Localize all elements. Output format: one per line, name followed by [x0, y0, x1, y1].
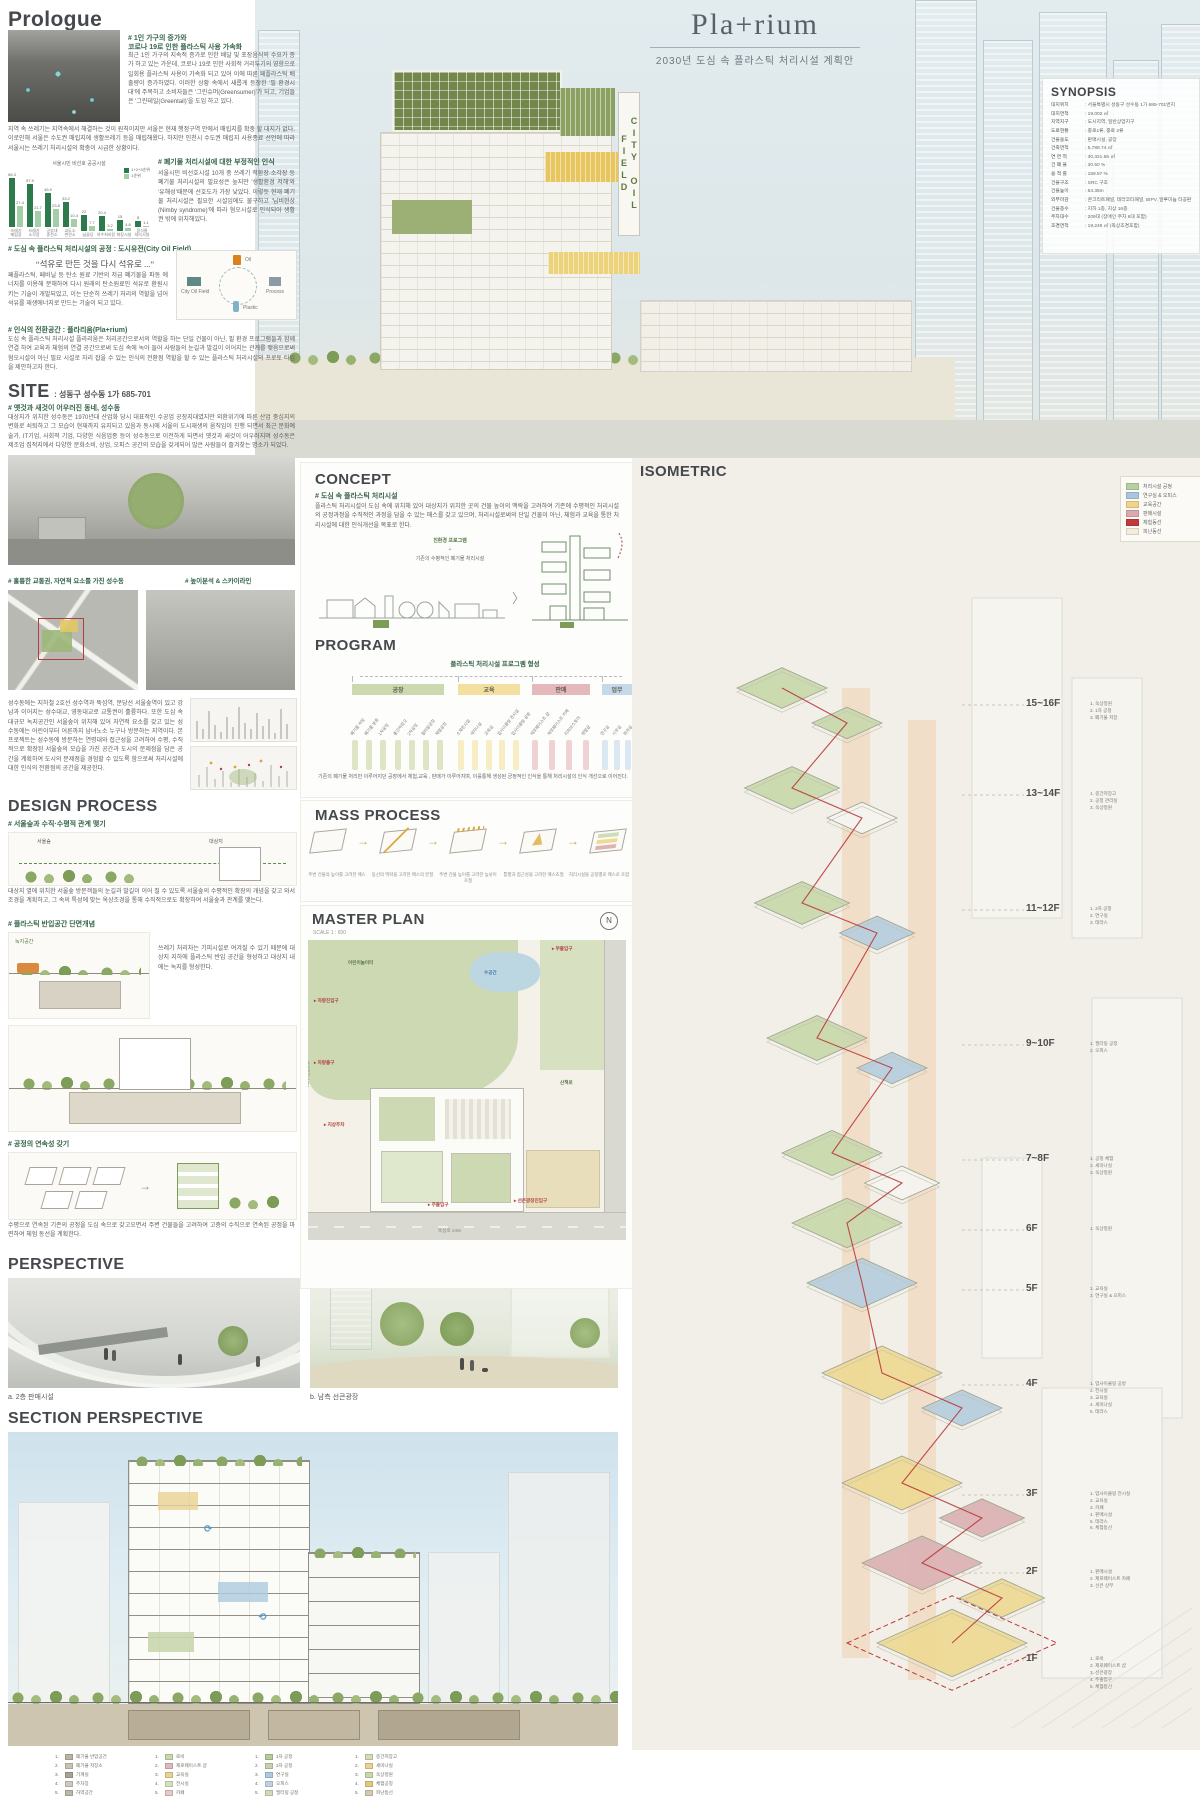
bar-wrap: 66.3 [9, 172, 16, 227]
synopsis-key: 건물높이 [1051, 188, 1085, 197]
chart-bar-group: 227.7납골당 [80, 209, 96, 238]
section-legend-row: 5.피난동선 [355, 1788, 397, 1797]
chart-title: 서울시민 비선호 공공시설 [8, 160, 150, 167]
mass-step-5 [589, 828, 627, 853]
program-item: 제로웨이스트 카페 [549, 700, 557, 770]
mass-step-1 [309, 828, 347, 853]
legend-label: 폐기물 반입공간 [76, 1754, 107, 1760]
bar-value: 23.8 [52, 203, 60, 208]
synopsis-row: 건물높이: 64.35m [1051, 188, 1191, 197]
hero-band: Pla+rium 2030년 도심 속 플라스틱 처리시설 계획안 CITY O… [255, 0, 1200, 458]
design-process-heading: DESIGN PROCESS [8, 798, 158, 816]
program-item-bar [499, 740, 505, 770]
sketch-basement [69, 1092, 241, 1124]
synopsis-row: 도로현황: 중로1류, 중로 2류 [1051, 128, 1191, 137]
section-legend-group: 1.로비2.제로웨이스트 샵3.교육실4.전시실5.카페 [155, 1752, 207, 1797]
design-s1-diagram: 서울숲 대상지 [8, 832, 297, 886]
bar-pair: 227.7 [81, 209, 96, 231]
legend-label: 처리시설 공정 [1143, 483, 1172, 490]
program-item-bar [472, 740, 478, 770]
chart-bar [53, 209, 59, 227]
chart-bar [89, 226, 95, 232]
mass-step-caption: 처리시설을 공정별로 매스로 조합 [568, 872, 630, 883]
legend-chip [165, 1790, 173, 1796]
section-bg-building [18, 1502, 110, 1704]
section-legend-row: 5.하역공간 [55, 1788, 107, 1797]
section-legend-row: 3.기계실 [55, 1770, 107, 1779]
section-legend-row: 1.중간저장고 [355, 1752, 397, 1761]
site-s1-heading: # 옛것과 새것이 어우러진 동네, 성수동 [8, 404, 295, 413]
program-item-bar [380, 740, 386, 770]
legend-label: 중간저장고 [376, 1754, 397, 1760]
legend-index: 5. [355, 1790, 362, 1795]
program-heading: PROGRAM [315, 638, 396, 655]
tree-drop [532, 676, 533, 682]
legend-chip [65, 1790, 73, 1796]
tree-drop [352, 676, 353, 682]
legend-label: 폐기물 저장소 [76, 1763, 103, 1769]
masterplan-label: ▸ 지상주차 [324, 1122, 345, 1128]
synopsis-row: 주차대수: 209대 (장애인 주차 6대 포함) [1051, 214, 1191, 223]
section-legend-row: 2.세미나실 [355, 1761, 397, 1770]
bar-value: 15 [118, 214, 122, 219]
floor-notes: 1. 공정 체험 2. 세미나실 3. 옥상정원 [1090, 1156, 1198, 1177]
bar-wrap: 27.4 [17, 200, 24, 226]
section-legend-row: 1.1차 공정 [255, 1752, 298, 1761]
legend-index: 4. [355, 1781, 362, 1786]
person [104, 1348, 108, 1360]
synopsis-key: 지역지구 [1051, 119, 1085, 128]
legend-label: 교육공간 [1143, 501, 1161, 508]
arrow-icon: → [427, 834, 439, 848]
park-tree [570, 1318, 600, 1348]
roof-garden [132, 1448, 302, 1466]
park-tree [380, 1302, 424, 1346]
synopsis-row: 용 적 률: 159.57 % [1051, 171, 1191, 180]
collage-ground [8, 539, 295, 565]
program-item-bar [409, 740, 415, 770]
bar-value: 4.8 [125, 222, 131, 227]
synopsis-row: 조경면적: 19,249 ㎡ (옥상조경포함) [1051, 223, 1191, 232]
legend-swatch [124, 168, 129, 173]
legend-chip [65, 1772, 73, 1778]
section-legend-row: 1.폐기물 반입공간 [55, 1752, 107, 1761]
legend-chip [365, 1754, 373, 1760]
legend-chip [65, 1781, 73, 1787]
section-legend-row: 3.교육실 [155, 1770, 207, 1779]
program-item: 체험공정 [437, 700, 445, 770]
legend-chip [365, 1772, 373, 1778]
legend-chip [265, 1763, 273, 1769]
truck-icon [17, 963, 39, 973]
bar-value: 1.1 [143, 220, 149, 225]
masterplan-label: ▸ 선큰광장진입구 [514, 1198, 547, 1204]
bar-value: 8 [137, 215, 139, 220]
program-item-bar [486, 740, 492, 770]
legend-index: 3. [355, 1772, 362, 1777]
legend-chip [1126, 501, 1139, 508]
person [460, 1358, 464, 1370]
bar-wrap: 33.2 [63, 196, 70, 227]
masterplan-labels: ▸ 차량진입구▸ 차량출구▸ 지상주차▸ 주출입구▸ 부출입구▸ 선큰광장진입구… [308, 940, 626, 1240]
prologue-s1-wide: 지역 속 쓰레기는 지역속에서 해결하는 것이 원칙이지만 서울은 현재 행정구… [8, 126, 295, 154]
isometric-drawing [632, 458, 1200, 1750]
mass-step-caption: 주변 건물의 높이를 고려한 매스 [306, 872, 368, 883]
program-item: 중간저장고 [395, 700, 403, 770]
floor-notes: 1. 중간저장고 2. 공정 관리실 3. 옥상정원 [1090, 791, 1198, 812]
synopsis-key: 건물용도 [1051, 137, 1085, 146]
program-item-bar [458, 740, 464, 770]
legend-label: 기계실 [76, 1772, 89, 1778]
legend-label: 오피스 [276, 1781, 289, 1787]
section-ground-line [8, 1702, 618, 1703]
chart-bar-group: 20.43.2하수처리장 [98, 210, 114, 238]
program-item: 제로웨이스트 샵 [532, 700, 540, 770]
concept-diagram-top-label: 친환경 프로그램 [360, 538, 540, 546]
section-legend-row: 3.옥상정원 [355, 1770, 397, 1779]
design-s3-body: 수평으로 연속된 기존의 공정을 도심 속으로 갖고오면서 주변 건물들을 고려… [8, 1222, 295, 1241]
design-s2-section-sketch [8, 1025, 297, 1132]
arrow-icon: → [497, 834, 509, 848]
underground-intake [39, 981, 121, 1009]
legend-chip [265, 1754, 273, 1760]
synopsis-row: 건물용도: 판매시설, 공장 [1051, 137, 1191, 146]
design-s3-heading: # 공정의 연속성 갖기 [8, 1140, 69, 1149]
diagram-greens [225, 1189, 285, 1209]
legend-chip [165, 1763, 173, 1769]
legend-chip [165, 1781, 173, 1787]
synopsis-key: 조경면적 [1051, 223, 1085, 232]
legend-index: 4. [155, 1781, 162, 1786]
legend-label: 연구실 [276, 1772, 289, 1778]
legend-label: 2차 공정 [276, 1763, 293, 1769]
chart-bar [63, 202, 69, 227]
bar-value: 57.9 [26, 178, 34, 183]
legend-index: 4. [55, 1781, 62, 1786]
poster-title: Pla+rium [595, 8, 915, 42]
section-legend-row: 1.로비 [155, 1752, 207, 1761]
chart-bar-group: 45.923.8군부대 송전소 [44, 187, 60, 238]
legend-label: 전시실 [176, 1781, 189, 1787]
program-item-bar [352, 740, 358, 770]
map-site-outline [38, 618, 84, 660]
synopsis-row: 외부마감: 콘크리트패널, 테라코타패널, BIPV, 알루미늄 타공판 [1051, 197, 1191, 206]
floor-label: 5F [1026, 1283, 1038, 1294]
building-annex [640, 300, 912, 372]
prologue-heading: Prologue [8, 8, 102, 31]
section-legend-row: 4.오피스 [255, 1779, 298, 1788]
program-tree-title: 플라스틱 처리시설 프로그램 형성 [360, 658, 630, 668]
building-green-slats [560, 88, 615, 136]
legend-chip [265, 1772, 273, 1778]
legend-index: 4. [255, 1781, 262, 1786]
airflow-arrow: ⟳ [204, 1524, 212, 1535]
mass-steps: → → → → [312, 830, 624, 852]
horizontal-facility-sketch [315, 570, 510, 630]
cycle-label-city: City Oil Field [181, 289, 221, 297]
cycle-circle [219, 267, 257, 305]
perspective-a-image [8, 1278, 300, 1388]
poster-subtitle: 2030년 도심 속 플라스틱 처리시설 계획안 [595, 52, 915, 67]
synopsis-key: 대지위치 [1051, 102, 1085, 111]
bar-wrap: 22 [81, 209, 88, 231]
synopsis-key: 대지면적 [1051, 111, 1085, 120]
prologue-photo [8, 30, 120, 122]
concept-s1-body: 플라스틱 처리시설이 도심 속에 위치해 있어 대상지가 위치한 곳의 건물 높… [315, 503, 619, 531]
tree-connector [360, 676, 622, 677]
program-category: 공장 [352, 684, 444, 695]
legend-chip [365, 1781, 373, 1787]
legend-label: 체험동선 [1143, 519, 1161, 526]
chart-bar-group: 154.8화장시설 [116, 214, 132, 238]
concept-s1-heading: # 도심 속 플라스틱 처리시설 [315, 492, 398, 501]
floor-notes: 1. 2차 공정 2. 연구실 3. 테라스 [1090, 906, 1198, 927]
site-heading-row: SITE : 성동구 성수동 1가 685-701 [8, 382, 151, 402]
chart-category-label: 하수처리장 [97, 233, 115, 238]
bar-value: 22 [82, 209, 86, 214]
collage-tree [128, 473, 184, 529]
mass-heading: MASS PROCESS [315, 808, 441, 825]
chart-bar [99, 216, 105, 231]
bar-value: 21.7 [34, 205, 42, 210]
legend-index: 2. [155, 1763, 162, 1768]
masterplan-label: ▸ 차량진입구 [314, 998, 339, 1004]
chart-category-label: 교도소 변전소 [62, 229, 78, 238]
bar-wrap: 15 [117, 214, 124, 231]
arrow-icon: → [357, 834, 369, 848]
bar-wrap: 21.7 [35, 205, 42, 227]
bar-pair: 33.210.4 [63, 196, 78, 227]
iso-legend-item: 교육공간 [1126, 501, 1200, 508]
floor-notes: 1. 교육실 2. 연구실 & 오피스 [1090, 1286, 1198, 1300]
chart-bar [71, 219, 77, 227]
tree-drop [602, 676, 603, 682]
synopsis-row: 건물구조: SRC 구조 [1051, 180, 1191, 189]
section-legend-row: 2.제로웨이스트 샵 [155, 1761, 207, 1770]
section-legend-row: 5.필터링 공정 [255, 1788, 298, 1797]
legend-index: 1. [355, 1754, 362, 1759]
stacked-process-tower [177, 1163, 219, 1209]
masterplan-label: ▸ 부출입구 [552, 946, 573, 952]
section-legend-row: 4.주차장 [55, 1779, 107, 1788]
oil-barrel-icon [233, 255, 241, 265]
masterplan-label: 수공간 [484, 970, 497, 976]
mass-captions: 주변 건물의 높이를 고려한 매스동선의 맥락을 고려한 매스의 분절주변 건물… [306, 872, 630, 883]
legend-label: 피난동선 [1143, 528, 1161, 535]
synopsis-key: 도로현황 [1051, 128, 1085, 137]
bar-wrap: 20.4 [99, 210, 106, 231]
legend-index: 3. [255, 1772, 262, 1777]
perspective-b-caption: b. 남측 선큰광장 [310, 1392, 358, 1402]
chart-bar-group: 81.1음식물 처리시설 [134, 215, 150, 238]
legend-chip [265, 1790, 273, 1796]
legend-label: 세미나실 [376, 1763, 393, 1769]
floor-label: 4F [1026, 1378, 1038, 1389]
iso-legend-item: 체험동선 [1126, 519, 1200, 526]
bar-value: 33.2 [62, 196, 70, 201]
bar-value: 7.7 [89, 220, 95, 225]
cityoilfield-diagram: Oil Process Plastic City Oil Field [176, 250, 297, 320]
mass-step-caption: 동선의 맥락을 고려한 매스의 분절 [372, 872, 434, 883]
legend-label: 로비 [176, 1754, 184, 1760]
legend-index: 5. [155, 1790, 162, 1795]
process-icon [269, 277, 281, 286]
seoul-forest-label: 서울숲 [37, 839, 51, 847]
sketch-building [119, 1038, 191, 1090]
section-yellow-room [158, 1492, 198, 1510]
design-s3-diagram: → [8, 1152, 297, 1220]
floor-notes: 1. 판매시설 2. 제로웨이스트 카페 3. 선큰 상부 [1090, 1569, 1198, 1590]
floor-label: 6F [1026, 1223, 1038, 1234]
legend-label: 카페 [176, 1790, 184, 1796]
park-path [310, 1356, 618, 1388]
tower-sketch-svg [530, 528, 630, 630]
bar-value: 27.4 [16, 200, 24, 205]
legend-label: 옥상정원 [376, 1772, 393, 1778]
site-s2-body: 성수동에는 지하철 2호선 성수역과 뚝섬역, 분당선 서울숲역이 있고 강남과… [8, 700, 183, 774]
section-legend-row: 5.카페 [155, 1788, 207, 1797]
isometric-legend: 처리시설 공정연구실 & 오피스교육공간판매시설체험동선피난동선 [1120, 476, 1200, 542]
bar-value: 20.4 [98, 210, 106, 215]
program-item: 소재전시실 [458, 700, 466, 770]
program-item: 리퍼브스토어 [566, 700, 574, 770]
bar-wrap: 3.2 [107, 223, 114, 231]
bg-building [330, 1288, 372, 1350]
site-aerial-image [146, 590, 295, 690]
section-drawing: ⟳ ⟲ [8, 1432, 618, 1746]
title-divider [650, 47, 860, 48]
legend-label: 피난동선 [376, 1790, 393, 1796]
legend-chip [165, 1754, 173, 1760]
chart-bar-group: 57.921.7쓰레기 소각장 [26, 178, 42, 238]
legend-chip [365, 1763, 373, 1769]
floor-notes: 1. 필터링 공정 2. 오피스 [1090, 1041, 1198, 1055]
program-item-bar [513, 740, 519, 770]
floor-notes: 1. 로비 2. 제로웨이스트 샵 3. 선큰광장 4. 주출입구 5. 체험동… [1090, 1656, 1198, 1690]
bar-wrap: 57.9 [27, 178, 34, 227]
prologue-s2-heading: # 폐기물 처리시설에 대한 부정적인 인식 [158, 158, 295, 167]
synopsis-key: 외부마감 [1051, 197, 1085, 206]
bar-value: 66.3 [8, 172, 16, 177]
legend-chip [365, 1790, 373, 1796]
skyline-chart [190, 746, 297, 790]
chart-bar [35, 211, 41, 227]
bar-wrap: 8 [135, 215, 142, 227]
section-bg-building [428, 1552, 500, 1704]
program-item: 연구실 [602, 700, 610, 770]
masterplan-label: 산책로 [560, 1080, 573, 1086]
bar-wrap: 23.8 [53, 203, 60, 227]
mass-step-2 [379, 828, 417, 853]
chart-category-label: 화장시설 [117, 233, 132, 238]
mass-step-caption: 통행과 접근성을 고려한 매스조절 [503, 872, 565, 883]
isometric-panel: ISOMETRIC 처리시설 공정연구실 & 오피스교육공간판매시설체험동선피난… [632, 458, 1200, 1750]
road-label-a: 성덕정길 19M [308, 1060, 310, 1087]
design-s2-body: 쓰레기 처리차는 기피시설로 여겨질 수 있기 때문에 대상지 지하에 플라스틱… [158, 945, 295, 973]
bar-pair: 45.923.8 [45, 187, 60, 227]
person [112, 1350, 116, 1361]
mass-step-4 [519, 828, 557, 853]
chevron-separator: 〉 [512, 588, 525, 607]
program-item: 사무실 [614, 700, 622, 770]
legend-chip [1126, 492, 1139, 499]
site-building-outline [219, 847, 261, 881]
process-box [40, 1191, 73, 1209]
floor-label: 9~10F [1026, 1038, 1055, 1049]
prologue-s3-quote: “석유로 만든 것을 다시 석유로 ...” [20, 258, 170, 270]
legend-label: 판매시설 [1143, 510, 1161, 517]
synopsis-row: 건 폐 율: 30.50 % [1051, 162, 1191, 171]
chart-category-label: 납골당 [82, 233, 93, 238]
underground-room [378, 1710, 520, 1740]
floor-label: 2F [1026, 1566, 1038, 1577]
person [470, 1360, 474, 1371]
process-box [92, 1167, 125, 1185]
bar-value: 45.9 [44, 187, 52, 192]
perspective-a-caption: a. 2층 판매시설 [8, 1392, 54, 1402]
mass-step-3 [449, 828, 487, 853]
program-item-bar [614, 740, 620, 770]
design-s2-diagram: 녹지공간 [8, 932, 150, 1019]
bar-pair: 57.921.7 [27, 178, 42, 227]
person [178, 1354, 182, 1365]
floor-label: 3F [1026, 1488, 1038, 1499]
floor-label: 7~8F [1026, 1153, 1049, 1164]
legend-index: 1. [55, 1754, 62, 1759]
cycle-label-process: Process [266, 289, 284, 297]
program-item-bar [549, 740, 555, 770]
section-legend-row: 4.체험공정 [355, 1779, 397, 1788]
height-analysis-chart [190, 698, 297, 742]
arrow-right: → [139, 1179, 151, 1193]
concept-heading: CONCEPT [315, 472, 391, 489]
program-item-bar [625, 740, 631, 770]
chart-bar [81, 215, 87, 231]
masterplan-drawing: ▸ 차량진입구▸ 차량출구▸ 지상주차▸ 주출입구▸ 부출입구▸ 선큰광장진입구… [308, 940, 626, 1240]
forest-blobs [21, 863, 141, 883]
building-green-band [392, 200, 472, 234]
synopsis-key: 건물구조 [1051, 180, 1085, 189]
city-icon [187, 277, 201, 286]
section-legend: 1.폐기물 반입공간2.폐기물 저장소3.기계실4.주차장5.하역공간1.로비2… [55, 1752, 535, 1798]
legend-index: 3. [55, 1772, 62, 1777]
plastic-bottle-icon [233, 301, 239, 312]
program-item-label: 사무실 [611, 724, 623, 737]
chart-category-label: 음식물 처리시설 [134, 229, 150, 238]
section-legend-group: 1.폐기물 반입공간2.폐기물 저장소3.기계실4.주차장5.하역공간 [55, 1752, 107, 1797]
poster-root: Pla+rium 2030년 도심 속 플라스틱 처리시설 계획안 CITY O… [0, 0, 1200, 1800]
synopsis-row: 연 면 적: 30,321.66 ㎡ [1051, 154, 1191, 163]
bar-wrap: 7.7 [89, 220, 96, 232]
skyline-svg-1 [191, 699, 296, 741]
program-caption: 기존의 폐기물 처리만 이루어지던 공장에서 체험,교육 , 판매가 이루어지며… [318, 774, 630, 782]
legend-label: 교육실 [176, 1772, 189, 1778]
masterplan-heading: MASTER PLAN [312, 912, 425, 929]
chart-bar [27, 184, 33, 227]
concept-diagram-plus: + [360, 547, 540, 555]
legend-label: 하역공간 [76, 1790, 93, 1796]
iso-legend-item: 판매시설 [1126, 510, 1200, 517]
backdrop-tower [983, 40, 1033, 432]
program-item-bar [395, 740, 401, 770]
skyline-svg-2 [191, 747, 296, 789]
building-green-lattice [392, 70, 562, 132]
collage-truck [38, 517, 86, 541]
program-item: 1차공정 [380, 700, 388, 770]
chart-plot: 66.327.4쓰레기 매립장57.921.7쓰레기 소각장45.923.8군부… [8, 176, 150, 239]
floor-label: 15~16F [1026, 698, 1060, 709]
iso-legend-item: 처리시설 공정 [1126, 483, 1200, 490]
